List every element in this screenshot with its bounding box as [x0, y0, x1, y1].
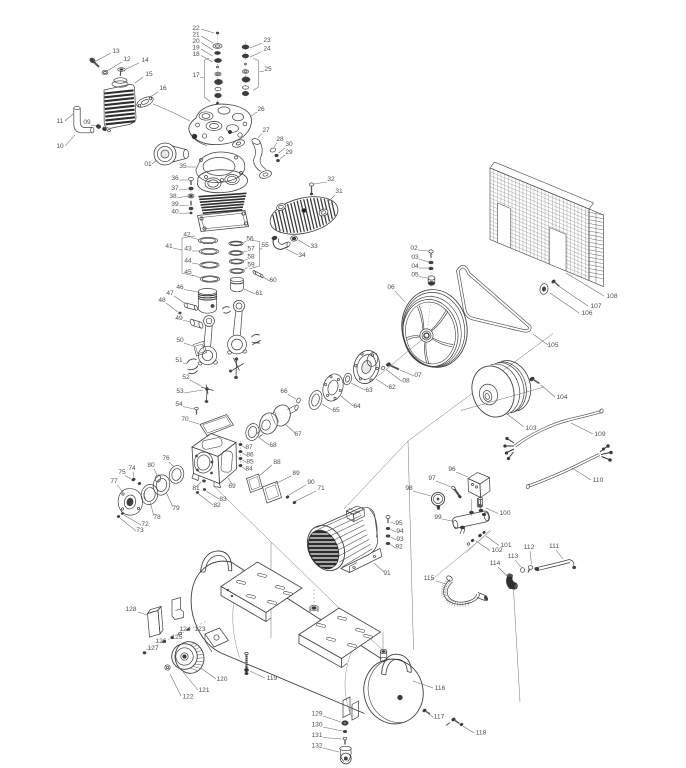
- svg-text:16: 16: [159, 85, 167, 92]
- svg-text:132: 132: [311, 743, 322, 750]
- svg-text:93: 93: [396, 536, 404, 543]
- svg-text:54: 54: [175, 401, 183, 408]
- svg-text:32: 32: [327, 176, 335, 183]
- svg-text:62: 62: [388, 384, 396, 391]
- svg-text:86: 86: [246, 452, 254, 459]
- svg-text:124: 124: [179, 626, 190, 633]
- svg-text:66: 66: [280, 388, 288, 395]
- svg-text:14: 14: [141, 57, 149, 64]
- svg-text:10: 10: [56, 143, 64, 150]
- svg-text:25: 25: [264, 66, 272, 73]
- svg-text:84: 84: [245, 466, 253, 473]
- svg-text:102: 102: [491, 547, 502, 554]
- svg-text:75: 75: [118, 469, 126, 476]
- svg-text:118: 118: [476, 730, 487, 737]
- svg-text:56: 56: [246, 236, 254, 243]
- svg-text:78: 78: [153, 514, 161, 521]
- svg-text:30: 30: [285, 141, 293, 148]
- svg-text:44: 44: [184, 258, 192, 265]
- svg-text:89: 89: [292, 470, 300, 477]
- svg-text:47: 47: [166, 290, 174, 297]
- svg-text:125: 125: [171, 634, 182, 641]
- svg-text:108: 108: [606, 293, 617, 300]
- svg-text:97: 97: [428, 475, 436, 482]
- svg-text:28: 28: [276, 136, 284, 143]
- svg-text:60: 60: [269, 277, 277, 284]
- svg-text:88: 88: [273, 459, 281, 466]
- svg-text:49: 49: [175, 315, 183, 322]
- svg-text:70: 70: [181, 416, 189, 423]
- svg-text:06: 06: [387, 284, 395, 291]
- svg-text:04: 04: [411, 263, 419, 270]
- svg-text:26: 26: [257, 106, 265, 113]
- svg-text:103: 103: [525, 425, 536, 432]
- svg-text:121: 121: [198, 687, 209, 694]
- svg-text:111: 111: [549, 543, 559, 550]
- svg-text:126: 126: [155, 638, 166, 645]
- svg-text:96: 96: [448, 466, 456, 473]
- svg-text:09: 09: [83, 119, 91, 126]
- svg-text:95: 95: [395, 520, 403, 527]
- svg-text:35: 35: [179, 163, 187, 170]
- svg-text:23: 23: [263, 37, 271, 44]
- svg-text:77: 77: [110, 478, 118, 485]
- svg-text:71: 71: [317, 485, 325, 492]
- svg-text:58: 58: [247, 254, 255, 261]
- svg-text:41: 41: [165, 243, 173, 250]
- svg-text:11: 11: [57, 118, 64, 125]
- svg-text:99: 99: [434, 514, 442, 521]
- svg-text:67: 67: [294, 431, 302, 438]
- svg-text:73: 73: [136, 527, 144, 534]
- svg-text:112: 112: [524, 544, 535, 551]
- svg-text:36: 36: [171, 175, 179, 182]
- svg-text:03: 03: [411, 254, 419, 261]
- svg-text:59: 59: [247, 262, 255, 269]
- svg-text:105: 105: [547, 342, 558, 349]
- svg-text:39: 39: [171, 201, 179, 208]
- svg-text:129: 129: [311, 711, 322, 718]
- svg-text:68: 68: [269, 442, 277, 449]
- svg-text:29: 29: [285, 149, 293, 156]
- svg-text:55: 55: [261, 242, 269, 249]
- svg-text:119: 119: [267, 675, 278, 682]
- svg-text:114: 114: [490, 560, 501, 567]
- svg-text:18: 18: [192, 51, 200, 58]
- svg-text:12: 12: [123, 56, 131, 63]
- svg-text:120: 120: [216, 676, 227, 683]
- svg-text:127: 127: [147, 645, 158, 652]
- svg-text:130: 130: [311, 722, 322, 729]
- svg-text:37: 37: [171, 185, 179, 192]
- svg-text:48: 48: [158, 297, 166, 304]
- svg-text:43: 43: [184, 246, 192, 253]
- svg-text:07: 07: [414, 372, 422, 379]
- svg-text:109: 109: [594, 431, 605, 438]
- svg-text:34: 34: [298, 252, 306, 259]
- svg-text:117: 117: [434, 714, 445, 721]
- svg-text:08: 08: [402, 378, 410, 385]
- svg-text:90: 90: [307, 479, 315, 486]
- svg-text:110: 110: [593, 477, 604, 484]
- svg-text:106: 106: [581, 310, 592, 317]
- svg-text:64: 64: [353, 403, 361, 410]
- svg-text:83: 83: [219, 496, 227, 503]
- svg-text:87: 87: [245, 444, 253, 451]
- svg-text:115: 115: [424, 575, 435, 582]
- svg-text:33: 33: [310, 243, 318, 250]
- svg-text:122: 122: [182, 694, 193, 701]
- svg-text:82: 82: [213, 502, 221, 509]
- svg-text:01: 01: [144, 161, 152, 168]
- svg-text:46: 46: [176, 284, 184, 291]
- svg-text:40: 40: [171, 209, 179, 216]
- svg-text:107: 107: [590, 303, 601, 310]
- svg-text:79: 79: [172, 505, 180, 512]
- svg-text:91: 91: [383, 570, 391, 577]
- svg-text:31: 31: [335, 188, 343, 195]
- svg-text:123: 123: [194, 626, 205, 633]
- svg-text:128: 128: [125, 606, 136, 613]
- svg-text:57: 57: [247, 246, 255, 253]
- svg-text:27: 27: [262, 127, 270, 134]
- svg-text:02: 02: [410, 245, 418, 252]
- svg-text:94: 94: [396, 528, 404, 535]
- svg-text:15: 15: [145, 71, 153, 78]
- svg-text:104: 104: [556, 394, 567, 401]
- svg-text:24: 24: [263, 46, 271, 53]
- svg-text:74: 74: [128, 465, 136, 472]
- svg-text:100: 100: [499, 510, 510, 517]
- svg-text:45: 45: [184, 269, 192, 276]
- svg-text:81: 81: [192, 485, 200, 492]
- svg-text:63: 63: [365, 387, 373, 394]
- svg-text:76: 76: [162, 455, 170, 462]
- svg-text:131: 131: [311, 732, 322, 739]
- svg-text:38: 38: [169, 193, 177, 200]
- svg-text:05: 05: [411, 272, 419, 279]
- svg-text:61: 61: [255, 290, 263, 297]
- svg-text:92: 92: [395, 544, 403, 551]
- svg-text:52: 52: [182, 374, 190, 381]
- svg-text:51: 51: [175, 357, 183, 364]
- svg-text:98: 98: [405, 485, 413, 492]
- svg-text:42: 42: [183, 232, 191, 239]
- svg-text:69: 69: [228, 483, 236, 490]
- svg-text:17: 17: [192, 72, 200, 79]
- svg-text:13: 13: [112, 48, 120, 55]
- svg-text:80: 80: [147, 462, 155, 469]
- svg-text:50: 50: [176, 337, 184, 344]
- svg-text:65: 65: [332, 407, 340, 414]
- svg-text:116: 116: [435, 685, 446, 692]
- svg-text:113: 113: [508, 553, 519, 560]
- svg-text:53: 53: [176, 388, 184, 395]
- svg-text:85: 85: [246, 459, 254, 466]
